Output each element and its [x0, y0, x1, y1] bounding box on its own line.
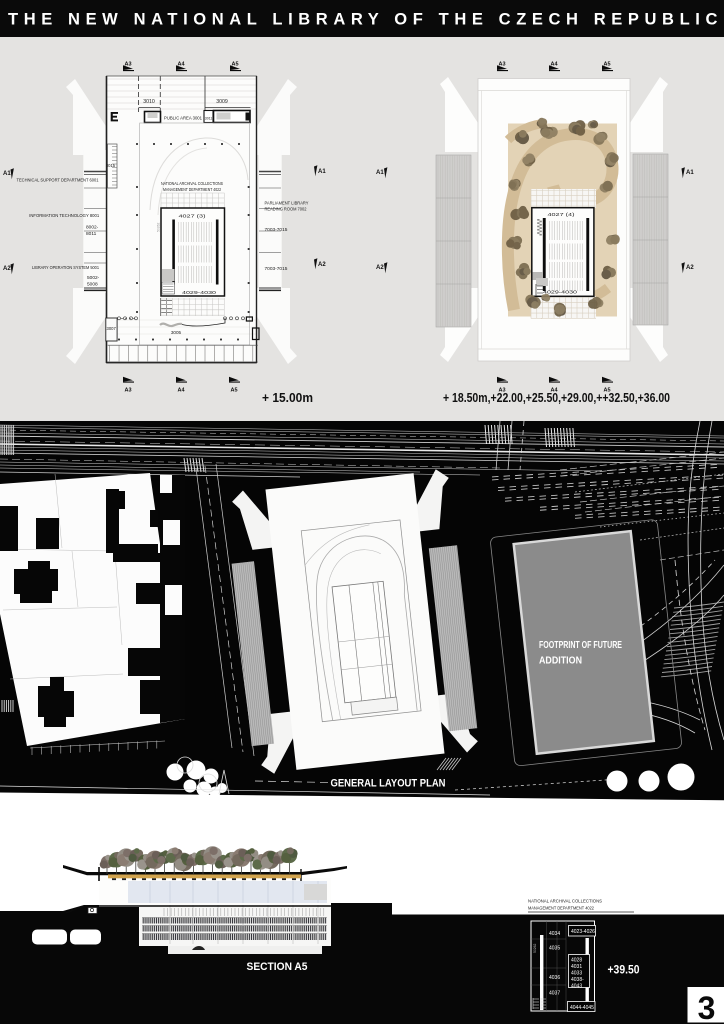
- svg-text:3009: 3009: [216, 99, 228, 105]
- svg-text:4023-4026: 4023-4026: [571, 929, 595, 935]
- svg-text:50262: 50262: [157, 222, 161, 232]
- svg-text:4033: 4033: [571, 971, 582, 977]
- svg-text:A4: A4: [177, 388, 185, 394]
- svg-text:PARLIAMENT LIBRARY: PARLIAMENT LIBRARY: [265, 201, 309, 206]
- svg-text:MANAGEMENT DEPARTMENT 4022: MANAGEMENT DEPARTMENT 4022: [528, 906, 594, 912]
- svg-text:+39.50: +39.50: [608, 963, 640, 977]
- svg-text:A1: A1: [376, 170, 384, 176]
- svg-text:A5: A5: [230, 388, 237, 394]
- svg-text:7003-7015: 7003-7015: [265, 227, 288, 233]
- svg-text:50262: 50262: [533, 943, 537, 953]
- svg-text:3: 3: [698, 990, 716, 1024]
- svg-text:A1: A1: [3, 171, 11, 177]
- svg-text:3011: 3011: [205, 117, 213, 121]
- svg-text:3010: 3010: [143, 99, 155, 105]
- svg-text:5008: 5008: [87, 282, 98, 288]
- svg-text:A2: A2: [376, 265, 384, 271]
- svg-text:A1: A1: [686, 170, 694, 176]
- svg-text:ADDITION: ADDITION: [539, 655, 582, 667]
- svg-text:4035: 4035: [549, 946, 560, 952]
- svg-text:A2: A2: [318, 262, 326, 268]
- svg-text:4037: 4037: [549, 991, 560, 997]
- svg-text:+ 15.00m: + 15.00m: [262, 391, 313, 405]
- svg-text:4028: 4028: [571, 958, 582, 964]
- svg-text:A1: A1: [318, 169, 326, 175]
- svg-text:LIBRARY OPERATION SYSTEM 5001: LIBRARY OPERATION SYSTEM 5001: [32, 265, 99, 270]
- svg-text:FOOTPRINT OF FUTURE: FOOTPRINT OF FUTURE: [539, 639, 622, 651]
- svg-text:+ 18.50m,+22.00,+25.50,+29.00,: + 18.50m,+22.00,+25.50,+29.00,++32.50,+3…: [443, 391, 670, 405]
- svg-text:INFORMATION TECHNOLOGY 8001: INFORMATION TECHNOLOGY 8001: [29, 213, 100, 218]
- svg-text:PUBLIC AREA 3001: PUBLIC AREA 3001: [164, 116, 203, 121]
- svg-text:4027 (4): 4027 (4): [548, 212, 576, 218]
- svg-text:MANAGEMENT DEPARTMENT 4022: MANAGEMENT DEPARTMENT 4022: [163, 187, 221, 192]
- svg-text:A2: A2: [3, 266, 11, 272]
- svg-text:4027 (3): 4027 (3): [179, 214, 207, 220]
- svg-text:4034: 4034: [549, 931, 560, 937]
- svg-text:8002-: 8002-: [86, 225, 99, 231]
- svg-text:GENERAL LAYOUT PLAN: GENERAL LAYOUT PLAN: [331, 778, 446, 790]
- svg-text:3007: 3007: [107, 326, 117, 331]
- svg-text:8011: 8011: [86, 231, 97, 237]
- svg-text:3015: 3015: [106, 163, 116, 168]
- svg-text:4031: 4031: [571, 964, 582, 970]
- svg-text:READING ROOM 7002: READING ROOM 7002: [265, 207, 308, 212]
- svg-text:4029-4030: 4029-4030: [182, 290, 216, 296]
- svg-text:THE NEW NATIONAL LIBRARY OF TH: THE NEW NATIONAL LIBRARY OF THE CZECH RE…: [8, 11, 723, 29]
- svg-text:NATIONAL ARCHIVAL COLLECTIONS: NATIONAL ARCHIVAL COLLECTIONS: [161, 181, 223, 186]
- svg-text:4038-: 4038-: [571, 977, 584, 983]
- svg-text:4036: 4036: [549, 975, 560, 981]
- svg-text:4044-4045: 4044-4045: [570, 1005, 594, 1011]
- svg-text:4043: 4043: [571, 984, 582, 990]
- svg-text:5002-: 5002-: [87, 275, 100, 281]
- svg-text:TECHNICAL SUPPORT DEPARTMENT 6: TECHNICAL SUPPORT DEPARTMENT 6001: [17, 178, 100, 183]
- svg-text:7003-7015: 7003-7015: [265, 266, 288, 272]
- svg-text:NATIONAL ARCHIVAL COLLECTIONS: NATIONAL ARCHIVAL COLLECTIONS: [528, 899, 602, 905]
- svg-text:SECTION A5: SECTION A5: [247, 961, 308, 973]
- svg-text:A3: A3: [124, 388, 131, 394]
- svg-text:A2: A2: [686, 265, 694, 271]
- svg-text:3005: 3005: [171, 330, 182, 335]
